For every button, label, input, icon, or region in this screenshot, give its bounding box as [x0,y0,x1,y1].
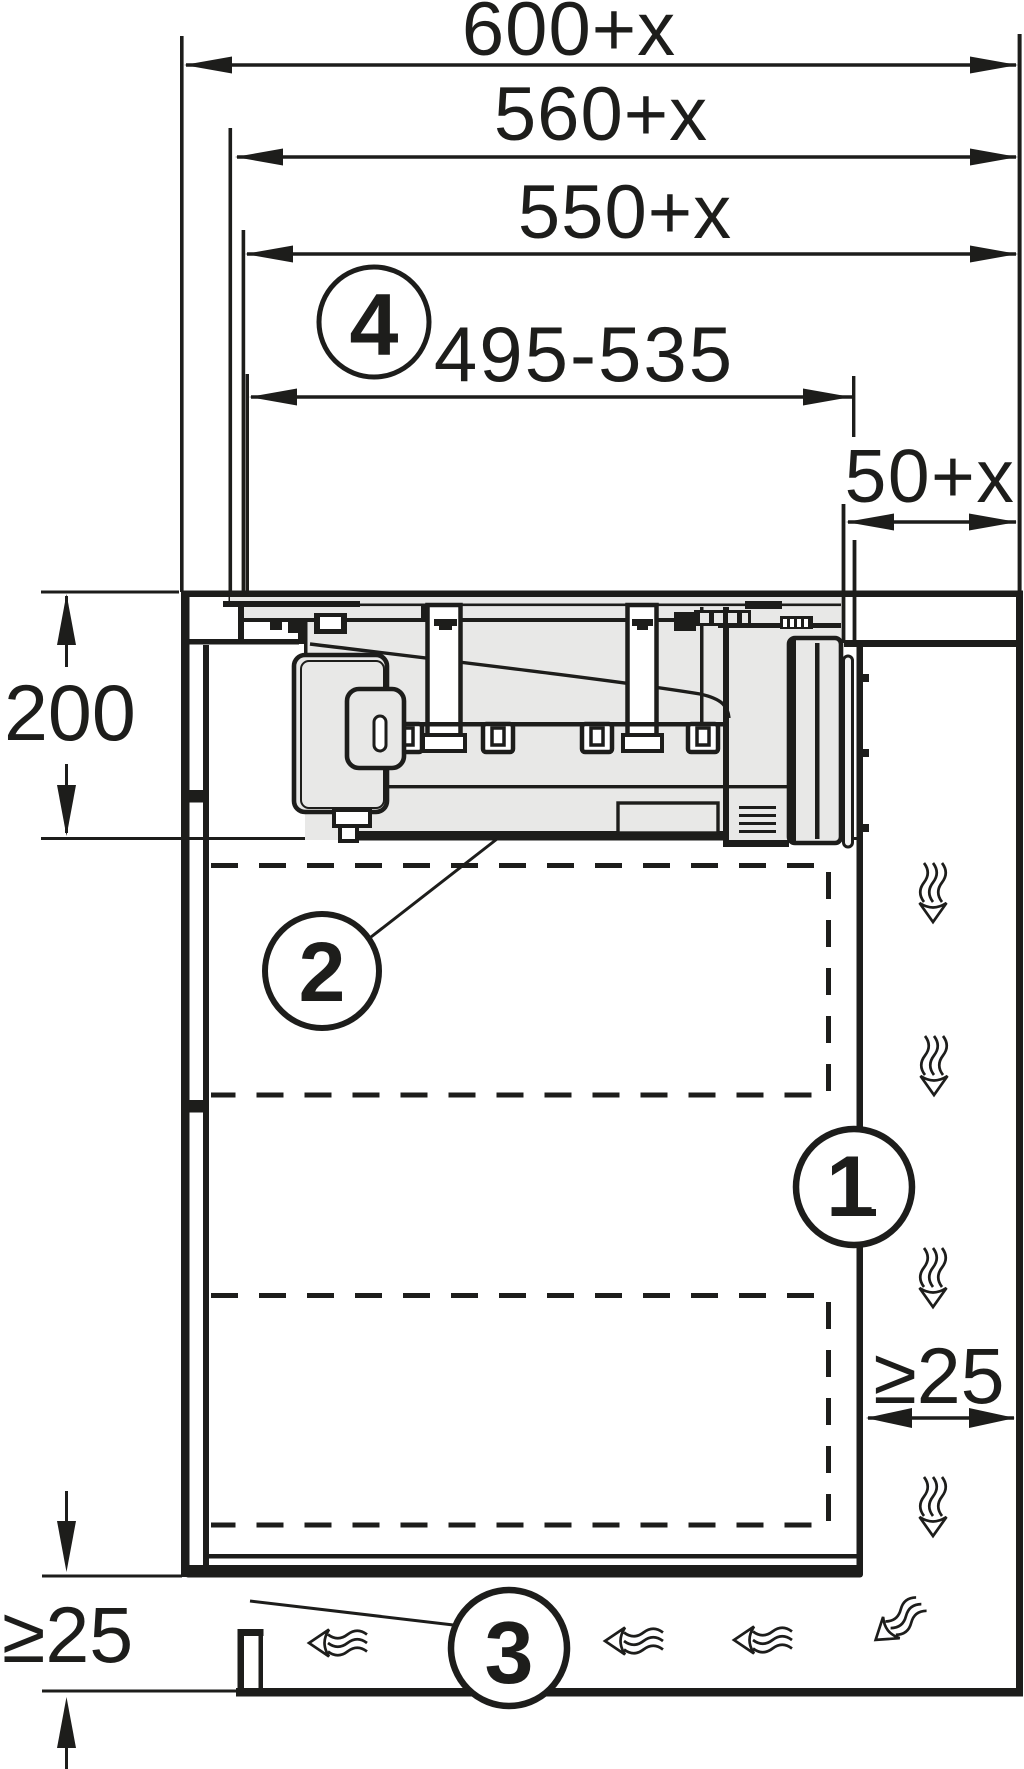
svg-text:≥25: ≥25 [873,1331,1004,1420]
svg-text:4: 4 [350,275,399,374]
svg-text:50+x: 50+x [845,434,1016,518]
svg-text:550+x: 550+x [518,170,732,255]
svg-text:3: 3 [485,1603,534,1702]
svg-text:560+x: 560+x [494,72,708,157]
svg-text:200: 200 [4,668,136,757]
svg-text:≥25: ≥25 [2,1590,133,1679]
svg-text:2: 2 [299,925,346,1019]
svg-text:495-535: 495-535 [434,310,734,398]
svg-text:1: 1 [826,1139,874,1235]
svg-text:600+x: 600+x [462,0,676,72]
